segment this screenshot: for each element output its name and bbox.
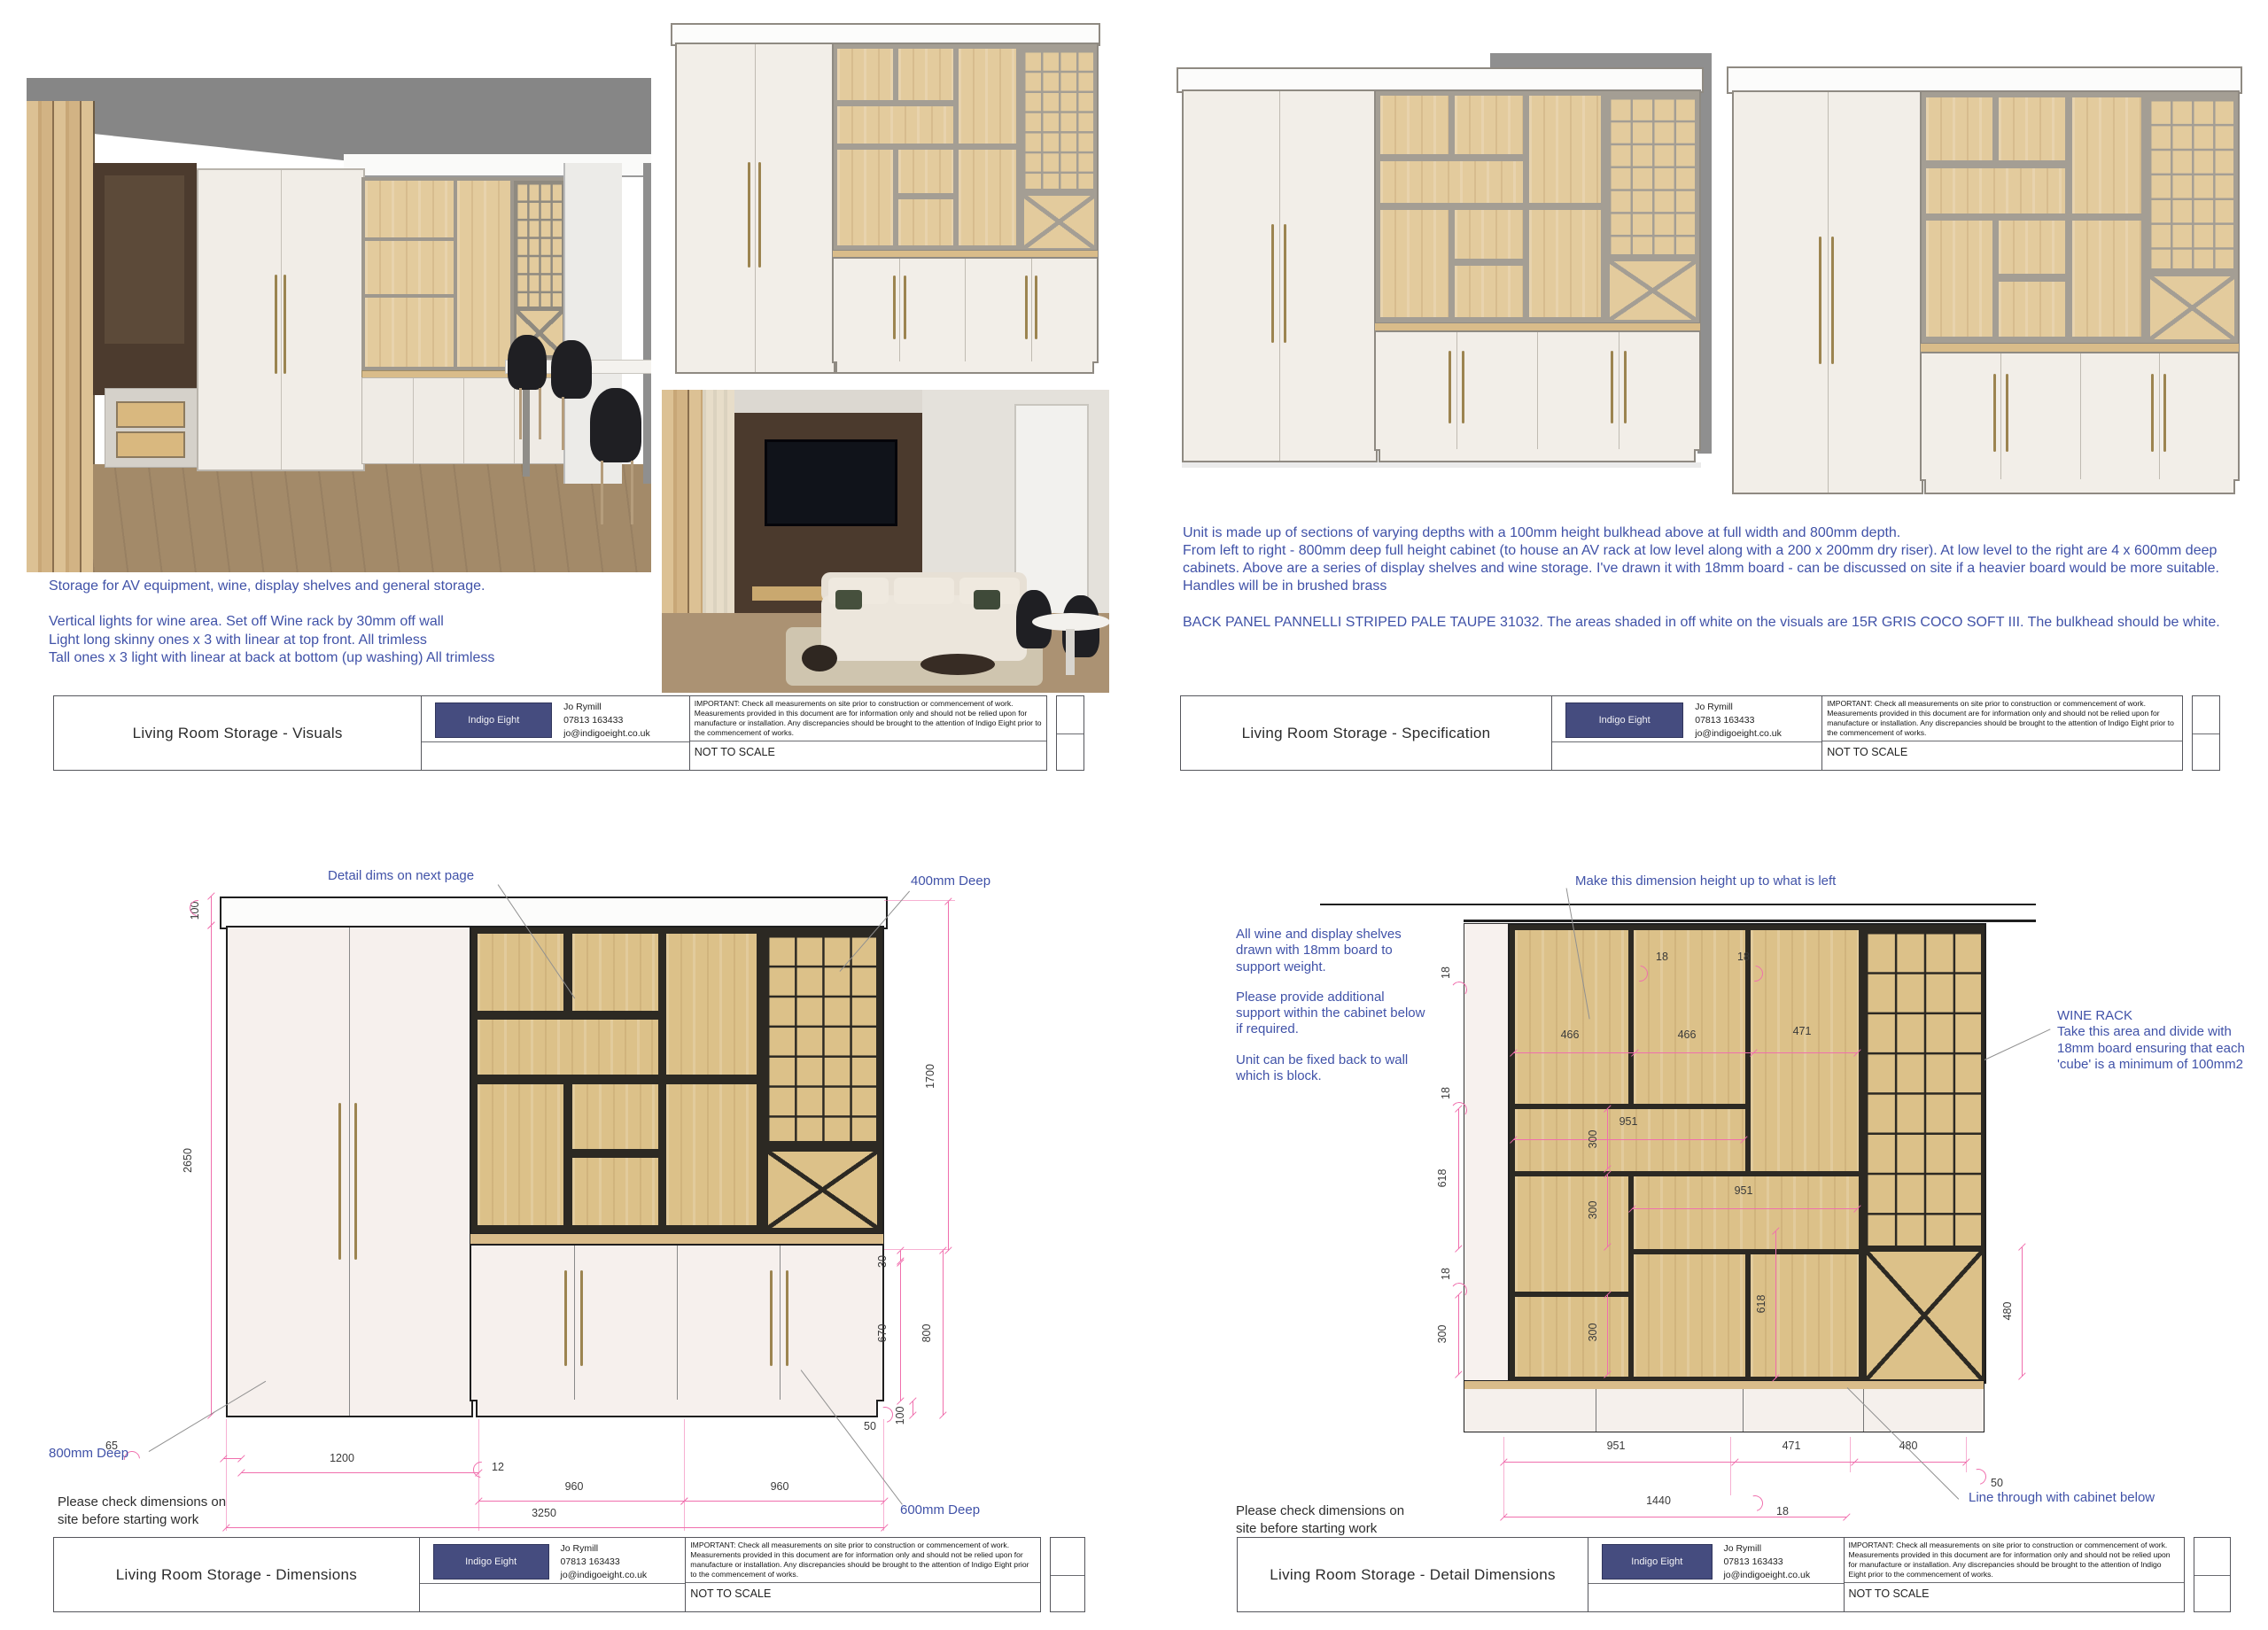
dim-line (1775, 1231, 1776, 1378)
side-table (802, 645, 837, 671)
counter-top (832, 250, 1099, 259)
handle (1624, 351, 1627, 423)
table-leg (523, 372, 530, 477)
shelf-cell (898, 199, 953, 244)
dim-line (900, 1251, 901, 1261)
tick (1631, 1050, 1639, 1058)
shelf-cell (959, 150, 1016, 244)
wood-floor (662, 613, 1109, 693)
contact-phone: 07813 163433 (561, 1556, 648, 1569)
unit-body (226, 926, 884, 1417)
dim-label: 1700 (924, 1064, 936, 1089)
dining-chair (1016, 590, 1052, 648)
base-cabinets (832, 257, 1099, 363)
display-shelves (361, 177, 563, 370)
wine-cross-cabinet (765, 1149, 880, 1231)
unit-elevation (1182, 67, 1701, 462)
title-block: Living Room Storage - Visuals Indigo Eig… (53, 695, 1047, 771)
shelf-cell (837, 49, 892, 100)
shelf-cell (478, 1020, 658, 1075)
base-cabinets (1374, 330, 1701, 450)
detail-notes: All wine and display shelves drawn with … (1236, 927, 1426, 1084)
shelf-cell (2072, 221, 2142, 337)
dim-line (226, 1527, 884, 1528)
shelf-cell (1455, 210, 1523, 259)
shelf-cell (1926, 168, 2065, 213)
contact-name: Jo Rymill (1723, 1542, 1810, 1556)
leader-line (498, 884, 576, 998)
ext-line (226, 1419, 227, 1531)
spec-paragraph: BACK PANEL PANNELLI STRIPED PALE TAUPE 3… (1183, 614, 2233, 632)
disclaimer-cell: IMPORTANT: Check all measurements on sit… (1844, 1538, 2184, 1611)
dim-label: 30 (876, 1255, 889, 1268)
indigo-eight-logo: Indigo Eight (433, 1544, 549, 1579)
dim-label: 100 (894, 1407, 906, 1425)
shelf-cell (1751, 930, 1859, 1171)
check-note: Please check dimensions on site before s… (58, 1494, 248, 1528)
hook (1450, 1101, 1469, 1120)
divider (677, 1246, 678, 1400)
shelf-cell (478, 1084, 563, 1226)
bulkhead (1177, 67, 1704, 93)
sheet-detail-dimensions: 18 18 618 18 300 18 18 466 466 471 951 3… (0, 0, 2268, 1630)
shelving-section (470, 926, 884, 1417)
divider (1031, 259, 1032, 361)
disclaimer-cell: IMPORTANT: Check all measurements on sit… (1821, 696, 2182, 770)
counter-top (470, 1233, 884, 1246)
counter-top (361, 370, 565, 379)
shelf-cell (572, 1158, 658, 1225)
floor-shadow (1182, 462, 1701, 468)
dim-label: 466 (1561, 1028, 1580, 1041)
shelving-section (1920, 90, 2240, 494)
dark-media-wall (93, 163, 197, 395)
handle (786, 1270, 788, 1366)
shelf-cell (898, 49, 953, 100)
media-wall-panel (105, 175, 184, 344)
display-shelves (832, 43, 1099, 253)
dim-line (1458, 1109, 1459, 1249)
dim-line (684, 1501, 884, 1502)
shelf-cell (1529, 96, 1600, 203)
contact-email: jo@indigoeight.co.uk (1723, 1569, 1810, 1582)
green-pillow (835, 590, 862, 609)
divider (413, 378, 414, 463)
dim-label: 800 (920, 1324, 933, 1343)
shelf-cell (1999, 97, 2065, 160)
spec-paragraph: Handles will be in brushed brass (1183, 578, 2233, 595)
not-to-scale: NOT TO SCALE (1822, 741, 2182, 759)
contact-phone: 07813 163433 (563, 714, 650, 727)
hook (1450, 981, 1469, 999)
door-split (1828, 92, 1829, 493)
handle (1462, 351, 1464, 423)
dim-label: 300 (1436, 1325, 1449, 1344)
indigo-eight-logo: Indigo Eight (1602, 1544, 1713, 1579)
dim-label: 100 (189, 902, 201, 920)
chair-leg (519, 388, 522, 439)
divider (514, 378, 515, 463)
wood-slat-wall (662, 390, 703, 693)
ext-line (478, 1419, 479, 1531)
handle (275, 275, 277, 374)
bulkhead-line (1320, 904, 2036, 905)
leader-line (149, 1381, 267, 1452)
divider (2159, 353, 2160, 479)
plinth (835, 361, 1094, 374)
shelf-cell (1380, 161, 1523, 203)
handle (564, 1270, 567, 1366)
handle (748, 162, 750, 267)
handle (770, 1270, 773, 1366)
dining-chair (508, 335, 547, 390)
leader-line (1984, 1028, 2051, 1060)
ext-line (883, 1419, 884, 1531)
bulkhead-fascia (344, 154, 651, 177)
dim-label: 951 (1619, 1115, 1638, 1128)
hook (470, 1458, 492, 1480)
counter-top (1920, 343, 2240, 353)
disclaimer-cell: IMPORTANT: Check all measurements on sit… (689, 696, 1046, 770)
tall-cabinet (1732, 90, 1923, 494)
render-elevation-front (1732, 66, 2240, 494)
tall-cabinet (675, 43, 835, 374)
note-line: Vertical lights for wine area. Set off W… (49, 613, 660, 632)
callout-label: 400mm Deep (911, 873, 990, 889)
title-block: Living Room Storage - Specification Indi… (1180, 695, 2183, 771)
wine-rack-title: WINE RACK (2057, 1008, 2268, 1024)
handle (1025, 276, 1028, 339)
handle (2151, 374, 2154, 452)
not-to-scale: NOT TO SCALE (686, 1582, 1040, 1601)
shelf-cell (1634, 1254, 1745, 1377)
leader-line (840, 891, 911, 972)
bulkhead (671, 23, 1100, 46)
render-perspective-unit (1180, 53, 1712, 489)
shelf-cell (1515, 1297, 1628, 1377)
shelf-cell (1455, 96, 1523, 154)
contact-phone: 07813 163433 (1723, 1556, 1810, 1569)
unit-body (1732, 90, 2240, 494)
callout-label: Make this dimension height up to what is… (1575, 873, 1836, 889)
tick (1731, 1459, 1739, 1467)
brand-cell: Indigo Eight Jo Rymill 07813 163433 jo@i… (419, 1538, 686, 1611)
dim-label: 50 (864, 1420, 876, 1432)
title-block: Living Room Storage - Detail Dimensions … (1237, 1537, 2185, 1612)
dim-label: 466 (1678, 1028, 1697, 1041)
wall-sliver (1697, 53, 1712, 454)
dim-line (1503, 1462, 1966, 1463)
handle (904, 276, 906, 339)
tick (1851, 1459, 1859, 1467)
wall (662, 390, 1109, 620)
wine-cross-cabinet (2148, 274, 2237, 342)
disclaimer-text: IMPORTANT: Check all measurements on sit… (695, 699, 1043, 738)
sheet-title: Living Room Storage - Detail Dimensions (1238, 1538, 1588, 1611)
dimensioned-elevation (226, 896, 884, 1417)
wall-backdrop (1490, 53, 1712, 119)
dim-line (1607, 1175, 1608, 1247)
leader-line (801, 1370, 903, 1504)
dim-label: 1200 (330, 1452, 354, 1464)
spec-paragraph: From left to right - 800mm deep full hei… (1183, 542, 2233, 578)
chair-leg (601, 461, 603, 524)
dim-line (241, 1472, 478, 1473)
ext-line (884, 1249, 950, 1250)
shelving-section (1374, 89, 1701, 462)
green-pillow (974, 590, 1000, 609)
handle (758, 162, 761, 267)
handle (1271, 224, 1274, 342)
base-cabinets (1464, 1389, 1984, 1432)
media-console (105, 388, 221, 468)
handle (1819, 237, 1821, 365)
dim-label: 3250 (532, 1507, 556, 1519)
specification-text: Unit is made up of sections of varying d… (1183, 524, 2233, 632)
counter-top (1464, 1380, 1984, 1391)
revision-box (2194, 1537, 2231, 1612)
disclaimer-text: IMPORTANT: Check all measurements on sit… (1849, 1541, 2180, 1580)
tall-cabinet (1182, 89, 1378, 462)
dim-line (900, 1263, 901, 1401)
wine-cross-cabinet (514, 308, 565, 358)
contact-name: Jo Rymill (1695, 701, 1782, 714)
dim-label: 618 (1755, 1295, 1767, 1314)
dim-label: 480 (1899, 1440, 1918, 1452)
handle (2163, 374, 2166, 452)
contact-info: Jo Rymill 07813 163433 jo@indigoeight.co… (561, 1542, 648, 1582)
tv-screen (765, 439, 897, 526)
wine-rack-grid (1607, 96, 1697, 255)
sheet-title: Living Room Storage - Specification (1181, 696, 1551, 770)
plinth (476, 1400, 878, 1417)
dim-line (1607, 1295, 1608, 1375)
divider (1619, 332, 1619, 448)
divider (1863, 1389, 1864, 1432)
leader-line (1847, 1387, 1960, 1500)
dim-label: 471 (1793, 1025, 1812, 1037)
unit-body (675, 43, 1099, 374)
shelf-cell (1999, 221, 2065, 274)
shelf-cell (365, 181, 454, 237)
door-frame (1014, 404, 1089, 618)
wood-floor (93, 464, 651, 572)
bulkhead (1727, 66, 2242, 94)
note-paragraph: Please provide additional support within… (1236, 990, 1426, 1038)
media-shelf (752, 586, 905, 601)
contact-name: Jo Rymill (563, 701, 650, 714)
shelving-section (832, 43, 1099, 374)
visuals-notes: Storage for AV equipment, wine, display … (49, 578, 660, 668)
divider (2080, 353, 2081, 479)
door-split (1279, 91, 1280, 461)
shelf-cell (666, 934, 757, 1075)
not-to-scale: NOT TO SCALE (690, 741, 1046, 759)
door-split (349, 928, 350, 1416)
dim-label: 300 (1587, 1323, 1599, 1342)
divider (899, 259, 900, 361)
not-to-scale: NOT TO SCALE (1845, 1582, 2184, 1601)
ceiling (27, 78, 651, 167)
sofa-back (821, 572, 1027, 602)
dining-chair (1062, 595, 1099, 657)
sheet-visuals: Storage for AV equipment, wine, display … (0, 0, 2268, 1630)
shelf-cell (959, 49, 1016, 144)
title-block: Living Room Storage - Dimensions Indigo … (53, 1537, 1041, 1612)
sheet-specification: Unit is made up of sections of varying d… (0, 0, 2268, 1630)
shelf-cell (365, 241, 454, 294)
base-cabinets (470, 1244, 884, 1401)
ext-line (684, 1419, 685, 1531)
shelf-cell (1380, 210, 1449, 317)
wine-rack-grid (1021, 49, 1095, 191)
divider (1743, 1389, 1744, 1432)
chair-leg (631, 461, 633, 524)
contact-info: Jo Rymill 07813 163433 jo@indigoeight.co… (1695, 701, 1782, 741)
divider (463, 378, 464, 463)
dim-line (223, 1458, 241, 1459)
indigo-eight-logo: Indigo Eight (435, 702, 552, 737)
shelf-cell (478, 934, 563, 1011)
divider (1456, 332, 1457, 448)
dining-chair (551, 340, 592, 399)
revision-box (2192, 695, 2220, 771)
sheet-title: Living Room Storage - Dimensions (54, 1538, 419, 1611)
dining-chair (590, 388, 641, 462)
handle (1035, 276, 1037, 339)
design-document-canvas: Storage for AV equipment, wine, display … (0, 0, 2268, 1630)
shelf-cell (2072, 97, 2142, 213)
shelf-cell (837, 150, 892, 244)
plinth (1924, 479, 2234, 494)
wine-cross-cabinet (1864, 1249, 1984, 1382)
render-elevation-front (675, 23, 1099, 374)
wine-cross-cabinet (1021, 193, 1097, 250)
dim-line (943, 1251, 944, 1416)
wine-rack-note: WINE RACK Take this area and divide with… (2057, 1008, 2268, 1073)
dim-label: 960 (771, 1480, 789, 1493)
dark-media-wall (734, 413, 922, 613)
side-wall (563, 163, 622, 484)
brand-cell: Indigo Eight Jo Rymill 07813 163433 jo@i… (1588, 1538, 1843, 1611)
plinth (1379, 449, 1696, 462)
display-shelves (1374, 89, 1701, 326)
shelf-cell (365, 298, 454, 367)
dim-line (1607, 1109, 1608, 1169)
shelf-cell (1634, 1176, 1859, 1249)
display-shelves (1920, 90, 2240, 346)
callout-label: 800mm Deep (49, 1446, 128, 1462)
door-split (281, 170, 282, 470)
disclaimer-cell: IMPORTANT: Check all measurements on sit… (685, 1538, 1040, 1611)
shelf-cell (1926, 221, 1992, 337)
divider (965, 259, 966, 361)
spec-paragraph: Unit is made up of sections of varying d… (1183, 524, 2233, 542)
shelf-cell (898, 150, 953, 193)
brand-cell: Indigo Eight Jo Rymill 07813 163433 jo@i… (421, 696, 688, 770)
handle (1993, 374, 1996, 452)
bulkhead (220, 896, 888, 929)
handle (893, 276, 896, 339)
indigo-eight-logo: Indigo Eight (1565, 702, 1683, 737)
disclaimer-text: IMPORTANT: Check all measurements on sit… (1827, 699, 2179, 738)
dim-label: 1440 (1646, 1494, 1671, 1507)
note-paragraph: Unit can be fixed back to wall which is … (1236, 1052, 1426, 1085)
tall-cabinet-render (197, 168, 365, 471)
divider (2000, 353, 2001, 479)
leader-line (1565, 888, 1589, 1019)
tall-cabinet (226, 926, 473, 1417)
handle (1449, 351, 1451, 423)
counter-top (1374, 322, 1701, 332)
dim-label: 2650 (182, 1148, 194, 1173)
shelf-cell (1515, 1109, 1745, 1171)
dim-label: 18 (1440, 1087, 1452, 1099)
dim-line (1458, 1295, 1459, 1375)
shelving-unit-render (361, 177, 563, 470)
shelf-cell (1455, 266, 1523, 317)
check-note: Please check dimensions on site before s… (1236, 1502, 1422, 1537)
display-shelves (470, 926, 884, 1237)
dim-label: 670 (876, 1324, 889, 1343)
contact-info: Jo Rymill 07813 163433 jo@indigoeight.co… (563, 701, 650, 741)
console-shelf (116, 401, 185, 428)
dim-line (211, 926, 212, 1416)
ext-line (1503, 1437, 1504, 1517)
shelf-cell (1999, 282, 2065, 338)
handle (338, 1103, 341, 1259)
contact-phone: 07813 163433 (1695, 714, 1782, 727)
hook (120, 1448, 143, 1470)
dim-label: 951 (1735, 1184, 1753, 1197)
wine-rack-grid (514, 181, 563, 308)
shelf-cell (1529, 210, 1600, 317)
dining-table (505, 360, 651, 374)
cabinet-below (1464, 1380, 1983, 1432)
dim-line (211, 896, 212, 926)
ext-line (1850, 1437, 1851, 1472)
dim-label: 65 (105, 1440, 118, 1452)
dim-line (1513, 1052, 1857, 1053)
divider (1537, 332, 1538, 448)
dim-label: 618 (1436, 1169, 1449, 1188)
hook (1744, 962, 1766, 984)
note-line: Tall ones x 3 light with linear at back … (49, 649, 660, 668)
dim-label: 18 (1440, 1268, 1452, 1280)
ext-line (1966, 1437, 1967, 1472)
shelf-cell (1634, 930, 1745, 1104)
handle (580, 1270, 583, 1366)
sofa-cushion (894, 578, 954, 604)
contact-name: Jo Rymill (561, 1542, 648, 1556)
shelf-cell (1926, 97, 1992, 160)
dim-line (1503, 1517, 1846, 1517)
contact-info: Jo Rymill 07813 163433 jo@indigoeight.co… (1723, 1542, 1810, 1582)
wine-rack-grid (2148, 97, 2235, 270)
dim-line (948, 902, 949, 1251)
contact-email: jo@indigoeight.co.uk (563, 727, 650, 741)
dim-label: 960 (565, 1480, 584, 1493)
unit-body (1182, 89, 1701, 462)
table-pedestal (1066, 629, 1075, 675)
hook (186, 896, 208, 919)
dim-line (1632, 1208, 1857, 1209)
shelf-cell (572, 1084, 658, 1149)
note-paragraph: All wine and display shelves drawn with … (1236, 927, 1426, 975)
dim-label: 18 (1737, 951, 1750, 963)
wine-rack-text: Take this area and divide with 18mm boar… (2057, 1024, 2268, 1073)
ext-line (1730, 1437, 1731, 1495)
